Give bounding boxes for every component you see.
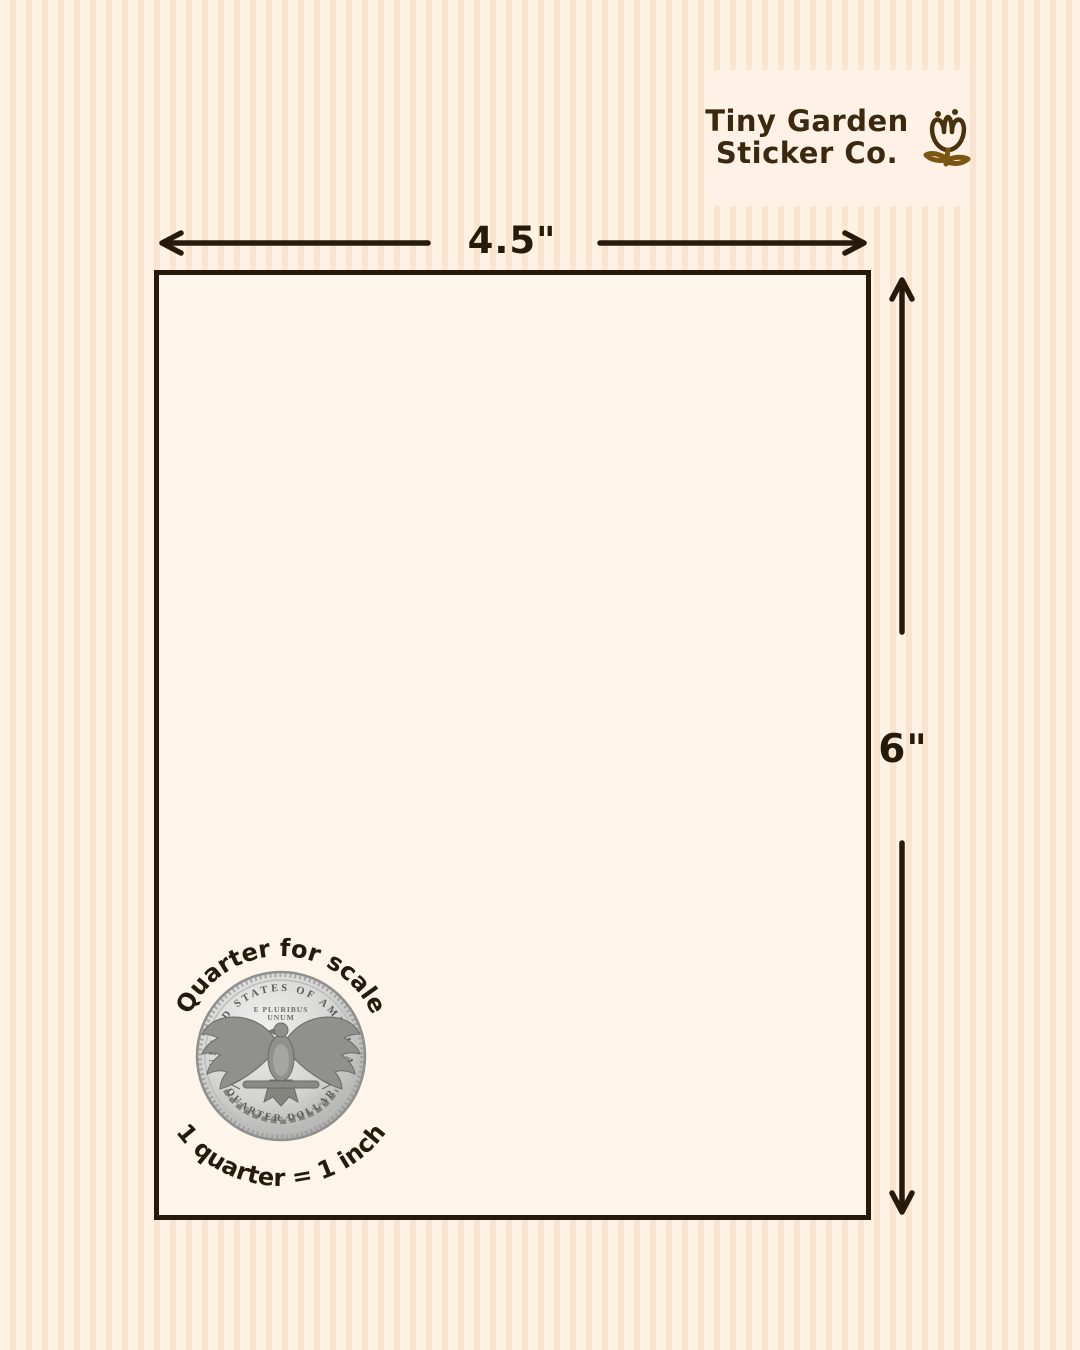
quarter-scale-figure: Quarter for scale UNITED STATES OF AMERI…: [140, 920, 440, 1220]
height-dimension-label: 6": [866, 727, 940, 772]
coin-motto-line2: UNUM: [267, 1013, 294, 1022]
width-arrow-left: [162, 233, 428, 253]
quarter-coin: UNITED STATES OF AMERICA E PLURIBUS UNUM…: [197, 972, 365, 1140]
brand-card: Tiny Garden Sticker Co.: [712, 70, 970, 206]
product-size-graphic: { "brand": { "name_line1": "Tiny Garden"…: [0, 0, 1080, 1350]
height-arrow-top: [892, 280, 912, 632]
tulip-flower-icon: [917, 107, 977, 169]
width-dimension-label: 4.5": [452, 219, 572, 262]
height-arrow-bottom: [892, 843, 912, 1212]
brand-name: Tiny Garden Sticker Co.: [705, 106, 909, 170]
width-arrow-right: [600, 233, 864, 253]
brand-name-line1: Tiny Garden: [705, 106, 909, 138]
brand-name-line2: Sticker Co.: [705, 138, 909, 170]
